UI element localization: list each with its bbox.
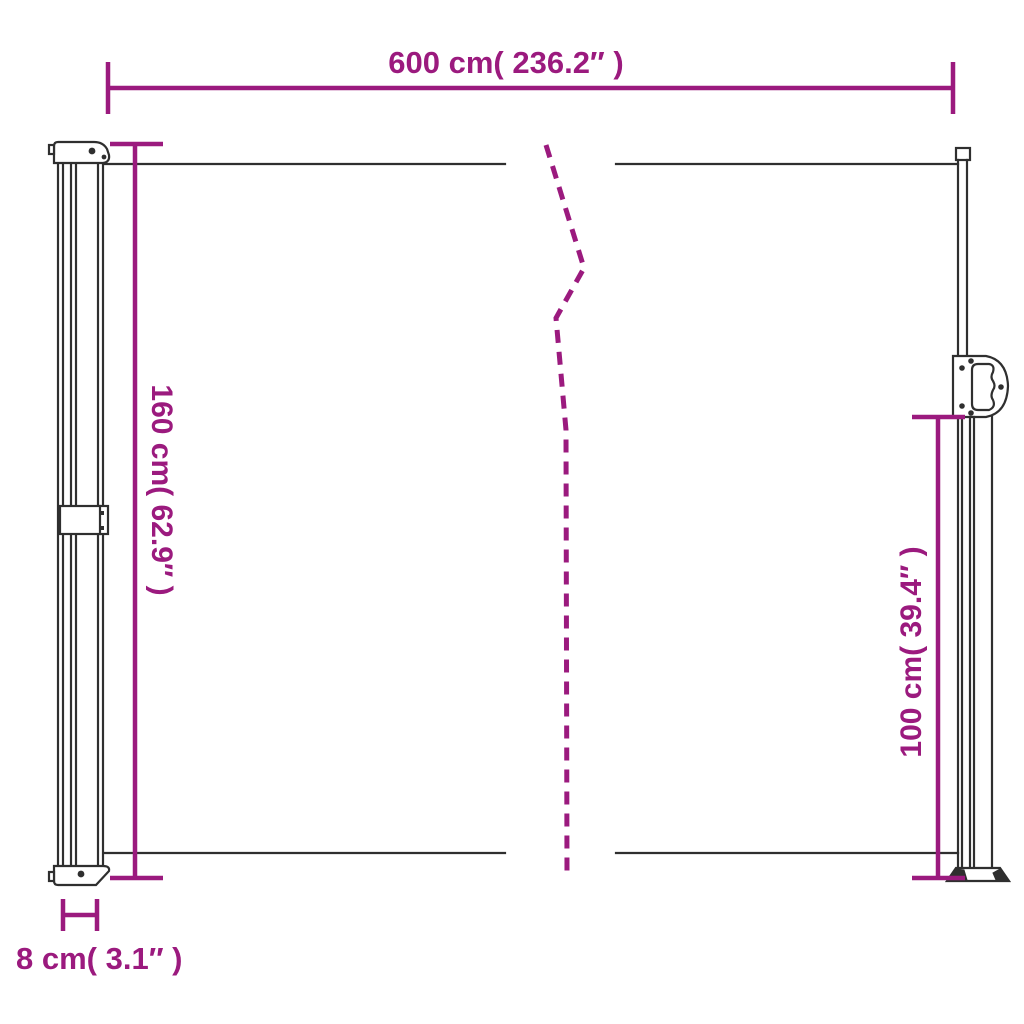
right-height-dimension-label: 100 cm( 39.4″ ) xyxy=(895,546,928,757)
cassette-top-cap xyxy=(54,142,109,163)
cassette-top-cap-tab xyxy=(49,145,54,154)
screw-dot xyxy=(959,403,965,409)
screw-dot xyxy=(968,410,974,416)
screw-dot xyxy=(998,384,1004,390)
break-zigzag-line xyxy=(546,145,584,877)
depth-dimension-label: 8 cm( 3.1″ ) xyxy=(16,941,182,976)
left-height-dimension: 160 cm( 62.9″ ) xyxy=(110,144,178,878)
screw-dot xyxy=(100,526,104,530)
screw-dot xyxy=(78,871,85,878)
right-height-dimension: 100 cm( 39.4″ ) xyxy=(895,417,965,878)
handle-grip-cutout xyxy=(972,364,995,410)
fabric-panel xyxy=(105,164,958,853)
width-dimension-label: 600 cm( 236.2″ ) xyxy=(388,45,623,80)
pole-top-cap xyxy=(956,148,970,160)
left-height-dimension-label: 160 cm( 62.9″ ) xyxy=(145,384,178,595)
depth-dimension: 8 cm( 3.1″ ) xyxy=(16,899,182,976)
screw-dot xyxy=(968,358,974,364)
awning-dimension-drawing: 600 cm( 236.2″ ) 160 cm( 62.9″ ) 100 cm(… xyxy=(0,0,1024,1024)
screw-dot xyxy=(100,511,104,515)
width-dimension: 600 cm( 236.2″ ) xyxy=(108,45,953,114)
screw-dot xyxy=(102,155,107,160)
cassette-bottom-cap-tab xyxy=(49,872,54,881)
break-line-group xyxy=(546,145,584,877)
product-dimension-diagram: 600 cm( 236.2″ ) 160 cm( 62.9″ ) 100 cm(… xyxy=(0,0,1024,1024)
awning-drawing xyxy=(49,142,1009,885)
support-pole-right xyxy=(947,148,1009,881)
screw-dot xyxy=(89,148,96,155)
cassette-left xyxy=(49,142,109,885)
screw-dot xyxy=(959,365,965,371)
